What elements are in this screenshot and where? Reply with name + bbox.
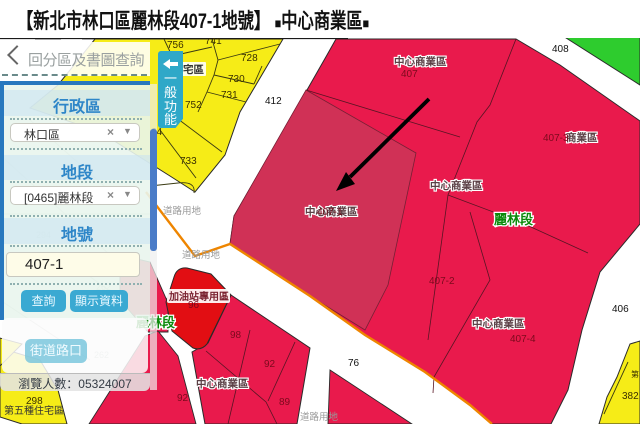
svg-text:407-3: 407-3	[543, 133, 569, 144]
svg-text:406: 406	[612, 304, 629, 315]
svg-text:412: 412	[265, 96, 282, 107]
svg-text:98: 98	[230, 330, 242, 341]
svg-text:407: 407	[401, 69, 418, 80]
svg-text:中心商業區: 中心商業區	[394, 55, 447, 68]
svg-text:92: 92	[177, 393, 189, 404]
svg-text:中心商業區: 中心商業區	[430, 179, 483, 192]
svg-text:728: 728	[241, 53, 258, 64]
svg-text:道路用地: 道路用地	[182, 249, 221, 261]
svg-text:76: 76	[348, 358, 360, 369]
svg-text:408: 408	[552, 44, 569, 55]
svg-text:道路用地: 道路用地	[163, 205, 202, 217]
svg-text:道路用地: 道路用地	[300, 411, 339, 423]
svg-text:宅區: 宅區	[183, 63, 204, 76]
svg-text:92: 92	[264, 359, 276, 370]
svg-text:756: 756	[167, 40, 184, 51]
svg-text:商業區: 商業區	[566, 131, 598, 144]
svg-text:89: 89	[279, 397, 291, 408]
svg-text:96: 96	[188, 300, 200, 311]
svg-text:第五種住宅區: 第五種住宅區	[631, 369, 640, 379]
svg-text:752: 752	[185, 100, 202, 111]
svg-text:730: 730	[228, 74, 245, 85]
svg-text:407-1: 407-1	[317, 207, 343, 218]
svg-text:407-4: 407-4	[510, 334, 536, 345]
svg-text:407-2: 407-2	[429, 276, 455, 287]
svg-text:第五種住宅區: 第五種住宅區	[4, 404, 64, 417]
svg-text:733: 733	[180, 156, 197, 167]
svg-text:麗林段: 麗林段	[494, 212, 533, 227]
svg-text:中心商業區: 中心商業區	[472, 317, 525, 330]
svg-text:382: 382	[622, 391, 639, 402]
svg-text:中心商業區: 中心商業區	[196, 377, 249, 390]
svg-text:731: 731	[221, 90, 238, 101]
